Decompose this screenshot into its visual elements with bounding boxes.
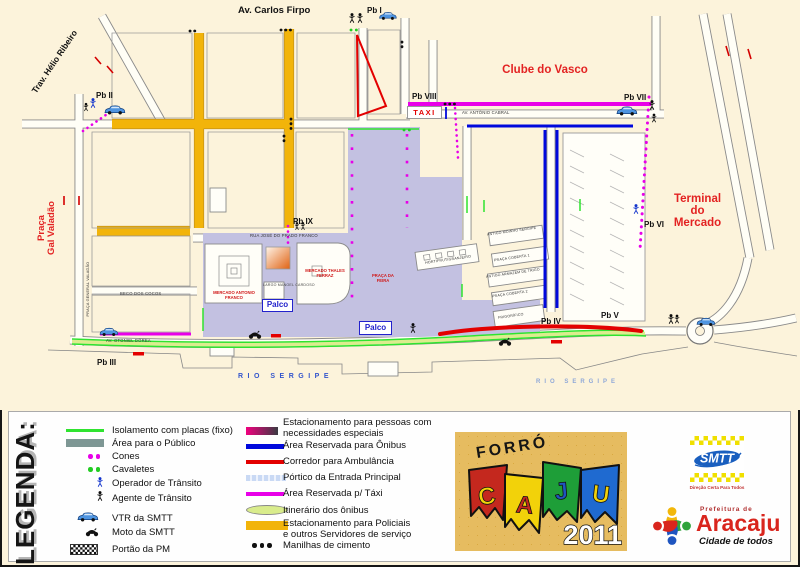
street-label-av-antonio-cabral: AV. ANTÔNIO CABRAL: [462, 111, 510, 116]
legend-label-portao-pm: Portão da PM: [112, 545, 170, 556]
forro-caju-2011-logo: FORRÓ C A J U 2011: [455, 432, 627, 551]
street-label-av-otoniel-dorea: AV. OTONIEL DÓREA: [106, 339, 151, 344]
street-label-praca-general-valadao: PRAÇA GENERAL VALADÃO: [86, 261, 90, 317]
legend-label-isolamento: Isolamento com placas (fixo): [112, 426, 233, 437]
legend-title: LEGENDA:: [10, 435, 44, 565]
legend-label-agente: Agente de Trânsito: [112, 494, 192, 505]
building-label-largo: LARGO MANOEL CARDOSO: [263, 284, 289, 288]
legend-label-cones: Cones: [112, 452, 139, 463]
legend-label-portico: Pórtico da Entrada Principal: [283, 473, 401, 484]
motorcycle-icon: [84, 526, 100, 537]
legend-label-area-taxi: Área Reservada p/ Táxi: [283, 489, 383, 500]
smtt-checker-top: [690, 436, 744, 445]
area-label-praca-gal-valadao: Praça Gal Valadão: [37, 183, 63, 273]
letter-u: U: [591, 480, 612, 509]
bus-terminal-parking: [563, 133, 645, 321]
smtt-name: SMTT: [700, 452, 735, 466]
smtt-logo: SMTT: [690, 436, 744, 482]
street-label-rua-jose-do-prado-franco: RUA JOSÉ DO PRADO FRANCO: [250, 234, 318, 239]
prefeitura-name: Aracaju: [696, 510, 780, 537]
legend-label-area-onibus: Área Reservada para Ônibus: [283, 441, 406, 452]
transit-operator-icon: [94, 476, 106, 488]
police-parking-icon: [246, 521, 288, 530]
legend-label-estacionamento-policiais: Estacionamento para Policiais e outros S…: [283, 519, 411, 541]
transit-agent-icon: [94, 490, 106, 502]
letter-j: J: [554, 477, 570, 505]
forro-title: FORRÓ: [475, 432, 550, 462]
legend-label-corredor-ambulancia: Corredor para Ambulância: [283, 457, 394, 468]
ambulance-corridor-icon: [246, 460, 284, 465]
legend-label-operador: Operador de Trânsito: [112, 479, 202, 490]
portico-building: [266, 247, 290, 269]
cavaletes-icon: [88, 467, 100, 472]
public-area-icon: [66, 439, 104, 447]
legend-label-vtr: VTR da SMTT: [112, 514, 173, 525]
area-label-terminal-do-mercado: Terminal do Mercado: [655, 193, 740, 229]
label-pb-vii: Pb VII: [624, 94, 646, 102]
label-pb-iii: Pb III: [97, 359, 116, 367]
legend-label-itinerario: Itinerário dos ônibus: [283, 506, 369, 517]
bus-reserved-icon: [246, 444, 284, 449]
legend-label-moto: Moto da SMTT: [112, 528, 175, 539]
label-pb-i: Pb I: [367, 7, 382, 15]
forro-caju-2011-traffic-plan: Av. Carlos Firpo Trav. Hélio Ribeiro Pb …: [0, 0, 800, 567]
legend-label-area-publico: Área para o Público: [112, 439, 195, 450]
legend-label-manilhas: Manilhas de cimento: [283, 541, 370, 552]
forro-year: 2011: [563, 520, 622, 550]
main-entrance-portico-icon: [246, 475, 286, 481]
area-label-rio-sergipe: RIO SERGIPE: [536, 379, 619, 385]
forro-caju-logo-art: FORRÓ C A J U 2011: [455, 432, 627, 551]
cones-icon: [88, 454, 100, 459]
legend-label-estacionamento-especial: Estacionamento para pessoas com necessid…: [283, 418, 431, 440]
street-label-beco-dos-cocos: BECO DOS COCOS: [120, 292, 161, 297]
label-pb-iv: Pb IV: [541, 318, 561, 326]
label-pb-viii: Pb VIII: [412, 93, 436, 101]
letter-a: A: [515, 491, 535, 519]
isolation-line-icon: [66, 429, 104, 432]
taxi-reserved-icon: [246, 492, 284, 497]
label-pb-ii: Pb II: [96, 92, 113, 100]
building-label-mercado-antonio-franco: MERCADO ANTONIO FRANCO: [205, 290, 263, 300]
area-label-clube-do-vasco: Clube do Vasco: [495, 64, 595, 76]
building-label-praca-da-feira: PRAÇA DA FEIRA: [365, 273, 401, 283]
pm-gate-icon: [70, 544, 98, 555]
label-pb-ix: Pb IX: [293, 218, 313, 226]
building-label-mercado-thales-ferraz: MERCADO THALES FERRAZ: [303, 268, 347, 278]
smtt-checker-bottom: [690, 473, 744, 482]
disabled-parking-icon: [246, 427, 278, 435]
palco-stage-sign: Palco: [359, 321, 392, 335]
vtr-car-icon: [76, 511, 100, 523]
smtt-tagline: Direção Certa Para Todos: [675, 485, 759, 490]
taxi-sign: TAXI: [407, 106, 442, 119]
prefeitura-tagline: Cidade de todos: [699, 536, 773, 547]
street-label-av-carlos-firpo: Av. Carlos Firpo: [238, 6, 310, 16]
label-pb-v: Pb V: [601, 312, 619, 320]
prefeitura-pinwheel-icon: [650, 504, 694, 548]
area-label-rio-sergipe: RIO SERGIPE: [238, 373, 333, 380]
palco-stage-sign: Palco: [262, 299, 293, 312]
cement-bollards-icon: [252, 543, 272, 548]
legend-label-cavaletes: Cavaletes: [112, 465, 154, 476]
bus-itinerary-icon: [246, 505, 288, 515]
smtt-logo-center: SMTT: [690, 445, 744, 473]
